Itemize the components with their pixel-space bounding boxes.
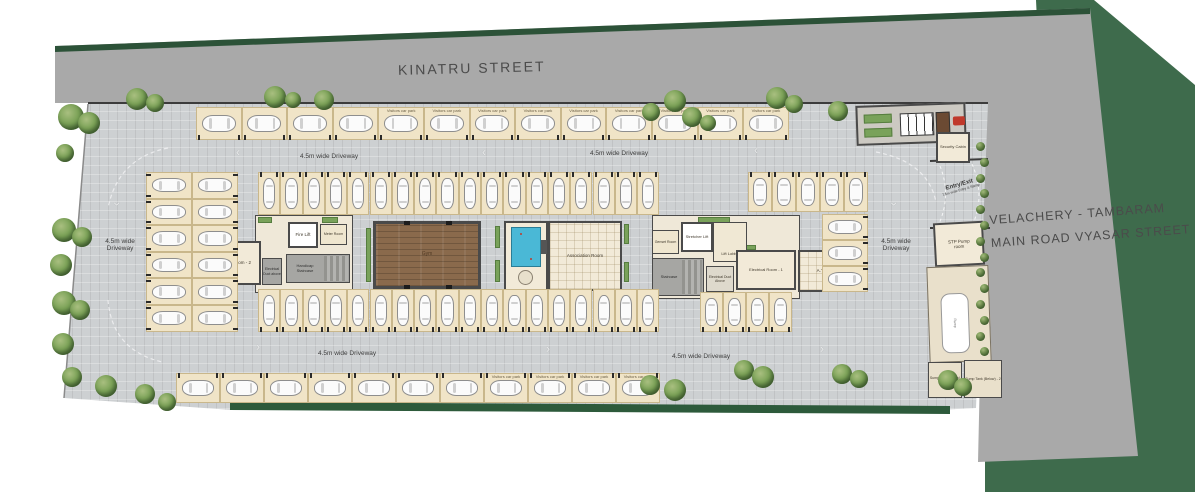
shrub-icon — [980, 158, 989, 167]
car-rear-window — [622, 318, 629, 320]
car-rear-window — [177, 181, 180, 190]
car-rear-window — [294, 383, 296, 393]
shrub-icon — [976, 142, 985, 151]
security-cabin: Security Cabin — [936, 132, 970, 163]
car-windshield — [205, 287, 208, 296]
parking-stall — [440, 373, 484, 403]
parking-stall — [820, 172, 844, 212]
driveway-label-top-left: 4.5m wide Driveway — [300, 153, 358, 160]
car-rear-window — [310, 201, 317, 203]
car-icon — [728, 298, 741, 327]
car-rear-window — [444, 201, 451, 203]
car-windshield — [511, 302, 518, 305]
car-rear-window — [578, 318, 585, 320]
staircase-left-label: Handicap Staircase — [290, 264, 320, 273]
car-icon — [397, 178, 409, 209]
car-rear-window — [206, 383, 208, 393]
car-rear-window — [223, 234, 226, 243]
tree-icon — [285, 92, 301, 108]
car-rear-window — [318, 118, 321, 129]
electrical-room-1-label: Electrical Room - 1 — [749, 268, 783, 273]
car-rear-window — [227, 118, 230, 129]
parking-stall — [593, 289, 615, 332]
car-icon — [339, 115, 373, 133]
car-windshield — [665, 118, 668, 129]
car-windshield — [205, 181, 208, 190]
parking-stall — [637, 289, 659, 332]
car-icon — [441, 178, 453, 209]
shrub-icon — [980, 316, 989, 325]
car-windshield — [377, 185, 384, 188]
parking-stall: Visitors car park — [515, 107, 561, 140]
stair-treads — [682, 260, 702, 294]
shrub-icon — [980, 221, 989, 230]
round-table — [518, 270, 533, 285]
car-windshield — [708, 304, 715, 306]
car-rear-window — [546, 118, 549, 129]
car-icon — [534, 380, 567, 396]
tree-icon — [850, 370, 868, 388]
parking-stall — [287, 107, 333, 140]
car-icon — [152, 231, 186, 245]
parking-stall — [347, 289, 369, 332]
car-rear-window — [355, 201, 362, 203]
car-windshield — [266, 185, 273, 188]
parking-stall — [192, 172, 238, 199]
site-plan: KINATRU STREET VELACHERY - TAMBARAM MAIN… — [0, 0, 1195, 499]
car-rear-window — [558, 383, 560, 393]
street-name-right: VELACHERY - TAMBARAM MAIN ROAD VYASAR ST… — [989, 203, 1139, 250]
car-windshield — [483, 118, 486, 129]
tree-icon — [72, 227, 92, 247]
parking-stall — [414, 289, 436, 332]
car-windshield — [466, 302, 473, 305]
car-icon — [751, 298, 764, 327]
parking-stall — [746, 292, 769, 332]
car-windshield — [205, 314, 208, 323]
car-rear-window — [511, 201, 518, 203]
parking-stall — [436, 172, 458, 215]
parking-stall — [333, 107, 379, 140]
car-icon — [486, 178, 498, 209]
parking-stall — [459, 172, 481, 215]
car-windshield — [645, 302, 652, 305]
car-icon — [828, 272, 862, 286]
driveway-arrow-icon: ‹ — [754, 144, 758, 156]
car-icon — [642, 178, 654, 209]
parking-stall — [503, 172, 525, 215]
car-icon — [375, 295, 387, 326]
driveway-arrow-icon: ‹ — [110, 202, 122, 206]
driveway-arrow-icon: ‹ — [887, 202, 899, 206]
car-icon — [152, 205, 186, 219]
dg-panel — [900, 112, 935, 136]
parking-stall: Visitors car park — [572, 373, 616, 403]
association-room-label: Association Room — [567, 253, 603, 258]
car-icon — [330, 178, 342, 209]
tree-icon — [126, 88, 148, 110]
gym-label: Gym — [422, 252, 433, 258]
car-windshield — [346, 118, 349, 129]
sump-tank-2-label: Sump Tank (Below) - 2 — [965, 377, 1000, 381]
parking-stall — [526, 172, 548, 215]
car-windshield — [422, 185, 429, 188]
car-rear-window — [310, 318, 317, 320]
genset-room: Genset Room — [652, 230, 679, 254]
car-windshield — [355, 302, 362, 305]
street-name-right-line2: MAIN ROAD VYASAR STREET — [990, 226, 1139, 250]
stretcher-lift-label: Stretcher Lift — [686, 235, 709, 240]
car-windshield — [453, 383, 456, 393]
car-rear-window — [602, 383, 604, 393]
tree-icon — [832, 364, 852, 384]
visitors-car-park-label: Visitors car park — [744, 109, 788, 113]
car-windshield — [835, 223, 838, 231]
visitors-car-park-label: Visitors car park — [471, 109, 515, 113]
car-icon — [612, 115, 646, 133]
car-icon — [285, 295, 297, 326]
tree-icon — [828, 101, 848, 121]
car-windshield — [255, 118, 258, 129]
car-windshield — [205, 234, 208, 243]
car-rear-window — [288, 318, 295, 320]
street-name-right-line1: VELACHERY - TAMBARAM — [989, 203, 1138, 227]
gym-hall: Gym — [373, 221, 481, 289]
car-windshield — [288, 302, 295, 305]
tree-icon — [56, 144, 74, 162]
parking-stall — [822, 214, 868, 240]
car-windshield — [804, 184, 812, 186]
car-windshield — [600, 185, 607, 188]
car-rear-window — [377, 201, 384, 203]
parking-stall — [280, 289, 302, 332]
car-icon — [598, 295, 610, 326]
car-windshield — [392, 118, 395, 129]
car-icon — [198, 311, 232, 325]
parking-stall — [637, 172, 659, 215]
car-icon — [446, 380, 479, 396]
parking-stall: Visitors car park — [424, 107, 470, 140]
car-rear-window — [338, 383, 340, 393]
car-windshield — [444, 302, 451, 305]
car-rear-window — [223, 208, 226, 217]
car-icon — [308, 295, 320, 326]
stp-pump-room-label: STP Pump room — [944, 238, 975, 250]
parking-stall — [146, 252, 192, 279]
car-icon — [263, 295, 275, 326]
electrical-duct-left-label: Electrical Duct above — [263, 267, 281, 275]
pool-ball — [520, 233, 522, 235]
driveway-label-bottom-right: 4.5m wide Driveway — [672, 353, 730, 360]
car-icon — [598, 178, 610, 209]
car-rear-window — [853, 223, 856, 231]
car-icon — [486, 295, 498, 326]
fire-lift: Fire Lift — [288, 222, 318, 248]
car-windshield — [159, 208, 162, 217]
car-windshield — [310, 302, 317, 305]
car-rear-window — [410, 118, 413, 129]
parking-stall — [192, 252, 238, 279]
red-transformer-icon — [953, 116, 965, 125]
car-rear-window — [177, 261, 180, 270]
car-rear-window — [731, 319, 738, 321]
car-windshield — [511, 185, 518, 188]
parking-stall: Visitors car park — [561, 107, 607, 140]
car-icon — [774, 298, 787, 327]
parking-stall — [822, 266, 868, 292]
parking-stall: Visitors car park — [470, 107, 516, 140]
yard-planter — [864, 128, 892, 138]
car-icon — [263, 178, 275, 209]
planter — [322, 217, 338, 223]
car-rear-window — [638, 118, 641, 129]
car-icon — [226, 380, 259, 396]
driveway-label-right: 4.5m wide Driveway — [872, 238, 920, 252]
tree-icon — [62, 367, 82, 387]
parking-stall — [258, 172, 280, 215]
car-icon — [375, 178, 387, 209]
tree-icon — [785, 95, 803, 113]
car-windshield — [645, 185, 652, 188]
tree-icon — [264, 86, 286, 108]
car-windshield — [159, 261, 162, 270]
car-rear-window — [444, 318, 451, 320]
car-icon — [152, 178, 186, 192]
parking-stall — [352, 373, 396, 403]
stair-treads — [324, 256, 348, 281]
street-name-top: KINATRU STREET — [398, 58, 546, 78]
car-rear-window — [177, 314, 180, 323]
car-windshield — [620, 118, 623, 129]
parking-stall — [396, 373, 440, 403]
driveway-label-top-right: 4.5m wide Driveway — [590, 150, 648, 157]
car-windshield — [835, 249, 838, 257]
parking-stall — [392, 289, 414, 332]
car-rear-window — [533, 201, 540, 203]
staircase-right-label: Staircase — [656, 275, 682, 280]
car-rear-window — [489, 318, 496, 320]
car-rear-window — [223, 261, 226, 270]
tree-icon — [954, 378, 972, 396]
association-room: Association Room — [548, 221, 622, 291]
parking-stall: Visitors car park — [528, 373, 572, 403]
car-rear-window — [501, 118, 504, 129]
car-windshield — [756, 184, 764, 186]
car-windshield — [541, 383, 544, 393]
car-rear-window — [729, 118, 732, 129]
car-windshield — [578, 185, 585, 188]
car-rear-window — [756, 199, 764, 201]
car-rear-window — [288, 201, 295, 203]
car-icon — [308, 178, 320, 209]
car-rear-window — [177, 234, 180, 243]
car-rear-window — [555, 318, 562, 320]
car-icon — [152, 311, 186, 325]
car-icon — [182, 380, 215, 396]
car-rear-window — [645, 318, 652, 320]
pool-ball — [530, 258, 532, 260]
car-icon — [198, 258, 232, 272]
parking-stall — [481, 172, 503, 215]
parking-stall — [347, 172, 369, 215]
car-rear-window — [804, 199, 812, 201]
parking-stall — [258, 289, 280, 332]
car-rear-window — [774, 118, 777, 129]
parking-stall — [264, 373, 308, 403]
car-windshield — [233, 383, 236, 393]
parking-stall — [192, 305, 238, 332]
parking-stall — [615, 172, 637, 215]
parking-stall — [176, 373, 220, 403]
car-icon — [578, 380, 611, 396]
parking-stall — [772, 172, 796, 212]
shrub-icon — [980, 189, 989, 198]
car-icon — [152, 285, 186, 299]
driveway-arrow-icon: ‹ — [256, 342, 260, 354]
car-icon — [293, 115, 327, 133]
car-icon — [531, 178, 543, 209]
car-windshield — [756, 118, 759, 129]
car-rear-window — [177, 287, 180, 296]
car-icon — [330, 295, 342, 326]
car-windshield — [555, 302, 562, 305]
car-rear-window — [377, 318, 384, 320]
tree-icon — [158, 393, 176, 411]
parking-stall — [308, 373, 352, 403]
games-counter — [541, 240, 547, 254]
ramp: Ramp — [940, 293, 970, 354]
car-rear-window — [250, 383, 252, 393]
parking-stall — [192, 278, 238, 305]
car-icon — [247, 115, 281, 133]
parking-stall — [146, 225, 192, 252]
driveway-label-left: 4.5m wide Driveway — [96, 238, 144, 252]
car-icon — [198, 285, 232, 299]
parking-stall: Visitors car park — [484, 373, 528, 403]
car-rear-window — [422, 318, 429, 320]
tree-icon — [642, 103, 660, 121]
car-rear-window — [223, 181, 226, 190]
road-top-green-strip — [55, 8, 1090, 52]
visitors-car-park-label: Visitors car park — [485, 375, 527, 379]
tree-icon — [70, 300, 90, 320]
tree-icon — [734, 360, 754, 380]
driveway-label-bottom-left: 4.5m wide Driveway — [318, 350, 376, 357]
parking-stall — [436, 289, 458, 332]
visitors-car-park-label: Visitors car park — [425, 109, 469, 113]
car-icon — [849, 178, 862, 207]
visitors-car-park-label: Visitors car park — [529, 375, 571, 379]
car-windshield — [277, 383, 280, 393]
car-icon — [441, 295, 453, 326]
planter — [495, 260, 500, 282]
car-windshield — [399, 185, 406, 188]
door-jamb — [404, 221, 410, 225]
car-windshield — [600, 302, 607, 305]
car-windshield — [852, 184, 860, 186]
planter — [624, 262, 629, 282]
parking-stall — [748, 172, 772, 212]
car-rear-window — [355, 318, 362, 320]
planter — [258, 217, 272, 223]
car-icon — [642, 295, 654, 326]
car-icon — [285, 178, 297, 209]
car-rear-window — [645, 201, 652, 203]
visitors-car-park-label: Visitors car park — [379, 109, 423, 113]
tree-icon — [135, 384, 155, 404]
car-icon — [567, 115, 601, 133]
car-windshield — [528, 118, 531, 129]
parking-stall — [192, 225, 238, 252]
car-rear-window — [266, 318, 273, 320]
electrical-duct-left: Electrical Duct above — [262, 258, 282, 285]
car-windshield — [332, 185, 339, 188]
car-icon — [352, 295, 364, 326]
car-rear-window — [533, 318, 540, 320]
planter — [624, 224, 629, 244]
car-windshield — [365, 383, 368, 393]
parking-stall: Visitors car park — [378, 107, 424, 140]
car-windshield — [159, 181, 162, 190]
parking-stall — [459, 289, 481, 332]
parking-stall — [822, 240, 868, 266]
stretcher-lift: Stretcher Lift — [681, 222, 713, 252]
driveway-arrow-icon: ‹ — [820, 344, 824, 356]
car-icon — [705, 298, 718, 327]
ramp-label: Ramp — [953, 318, 957, 327]
yard-planter — [864, 114, 892, 124]
car-rear-window — [489, 201, 496, 203]
car-icon — [521, 115, 555, 133]
car-rear-window — [852, 199, 860, 201]
car-icon — [508, 178, 520, 209]
parking-stall — [303, 289, 325, 332]
tree-icon — [95, 375, 117, 397]
parking-stall — [769, 292, 792, 332]
parking-stall — [570, 172, 592, 215]
car-windshield — [332, 302, 339, 305]
car-windshield — [780, 184, 788, 186]
car-icon — [352, 178, 364, 209]
car-icon — [419, 178, 431, 209]
car-icon — [198, 231, 232, 245]
tree-icon — [78, 112, 100, 134]
car-rear-window — [780, 199, 788, 201]
car-rear-window — [466, 318, 473, 320]
electrical-room-1: Electrical Room - 1 — [736, 250, 796, 290]
car-icon — [358, 380, 391, 396]
car-rear-window — [273, 118, 276, 129]
car-windshield — [585, 383, 588, 393]
car-windshield — [555, 185, 562, 188]
car-windshield — [377, 302, 384, 305]
car-windshield — [629, 383, 632, 393]
electrical-duct-right-label: Electrical Duct Above — [707, 275, 733, 283]
car-rear-window — [578, 201, 585, 203]
visitors-car-park-label: Visitors car park — [573, 375, 615, 379]
car-rear-window — [332, 318, 339, 320]
car-icon — [620, 178, 632, 209]
car-windshield — [533, 185, 540, 188]
car-rear-window — [223, 287, 226, 296]
car-windshield — [489, 302, 496, 305]
car-windshield — [754, 304, 761, 306]
car-windshield — [409, 383, 412, 393]
parking-stall — [796, 172, 820, 212]
car-rear-window — [592, 118, 595, 129]
parking-stall — [503, 289, 525, 332]
car-windshield — [497, 383, 500, 393]
